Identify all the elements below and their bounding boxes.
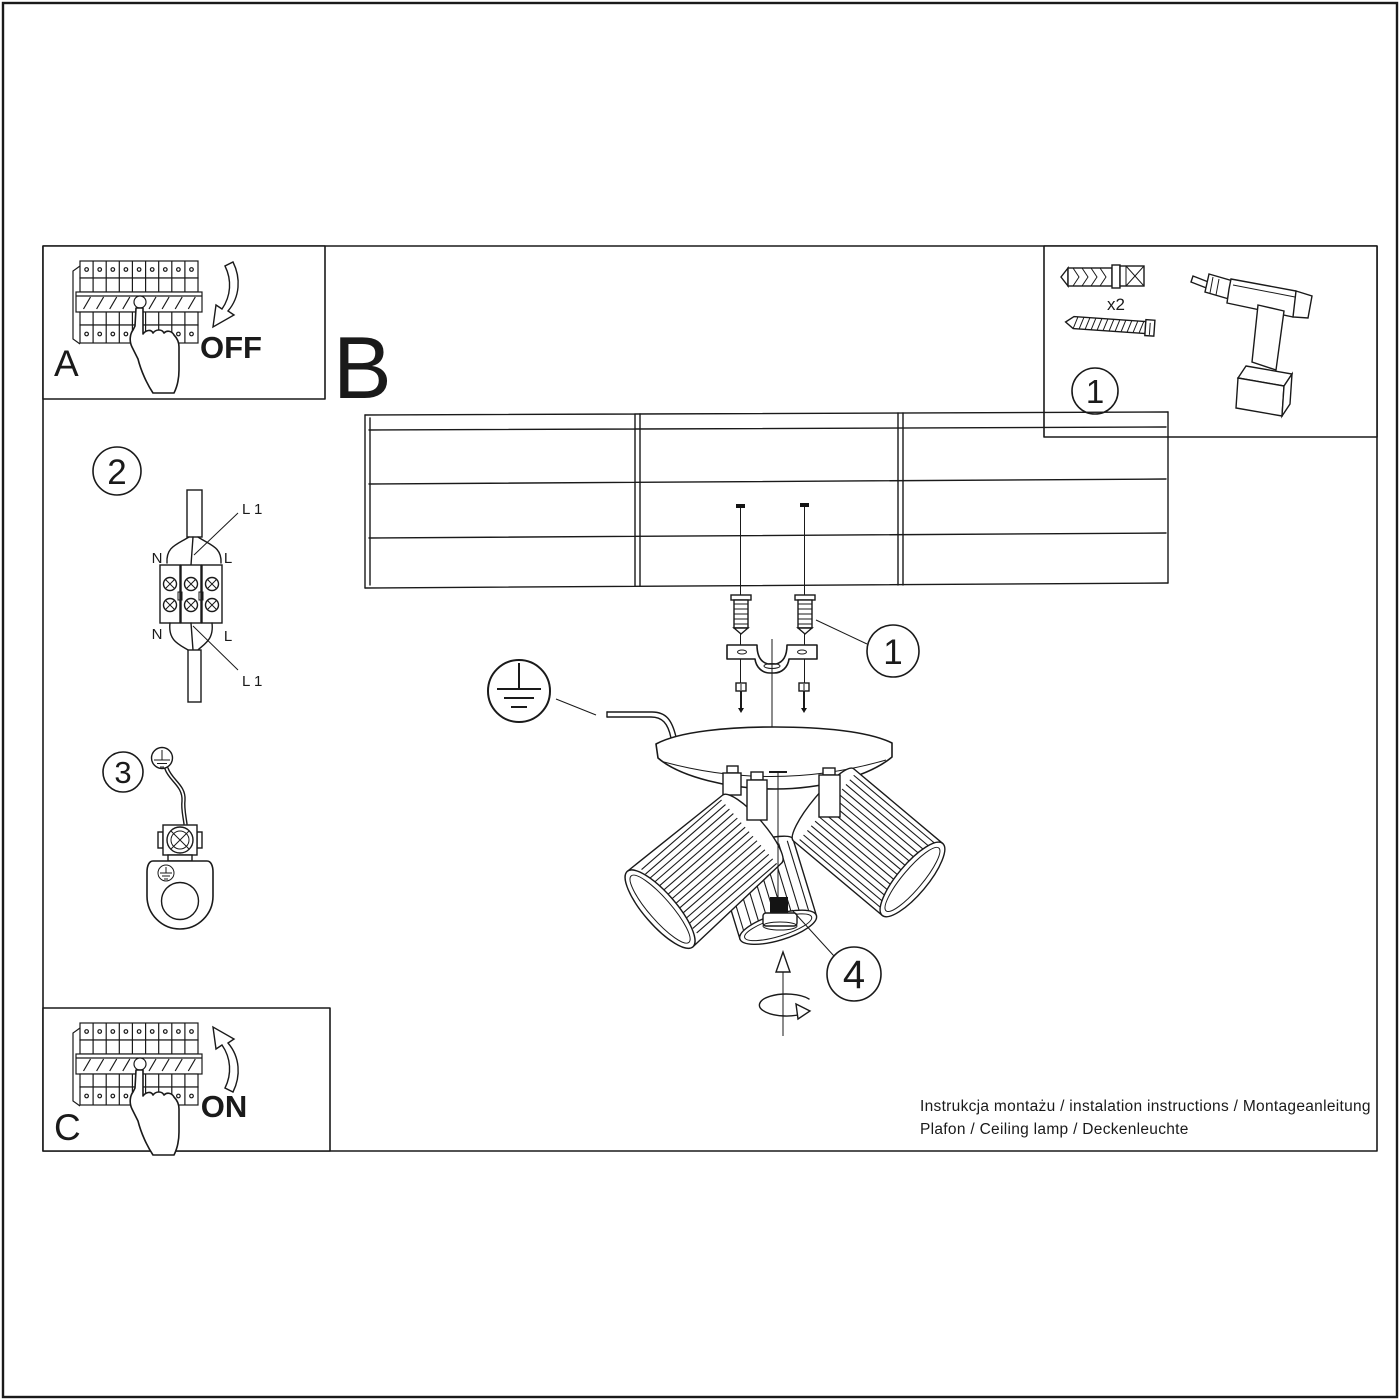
wall-plug-icon	[1061, 265, 1144, 288]
n-top-label: N	[152, 550, 163, 567]
on-label: ON	[201, 1089, 248, 1124]
drill-mark-icon	[800, 503, 809, 507]
instruction-sheet-page: OFF A ON C x2	[0, 0, 1400, 1400]
footer-line-2: Plafon / Ceiling lamp / Deckenleuchte	[920, 1121, 1189, 1138]
box-b-letter: B	[333, 318, 392, 417]
footer-line-1: Instrukcja montażu / instalation instruc…	[920, 1098, 1371, 1115]
lamp-stem-right	[819, 768, 840, 817]
dowel-quantity-label: x2	[1107, 295, 1125, 314]
step-1-tools-number: 1	[1086, 373, 1104, 410]
terminal-block	[160, 565, 222, 623]
step-1-bracket-number: 1	[883, 633, 902, 672]
wall-plug-right-icon	[795, 595, 815, 634]
l1-bottom-label: L 1	[242, 673, 262, 690]
step-4-number: 4	[843, 953, 865, 997]
step-3-number: 3	[114, 755, 131, 790]
page-frame	[3, 3, 1397, 1397]
wall-plug-left-icon	[731, 595, 751, 634]
l-top-label: L	[224, 550, 232, 567]
box-a-letter: A	[54, 343, 79, 384]
step-2-number: 2	[107, 453, 126, 492]
ground-lug-icon	[147, 855, 213, 929]
box-c-letter: C	[54, 1107, 81, 1148]
cable-top	[187, 490, 202, 537]
cable-bottom	[188, 650, 201, 702]
n-bottom-label: N	[152, 626, 163, 643]
instruction-diagram: OFF A ON C x2	[0, 0, 1400, 1400]
off-label: OFF	[200, 330, 262, 365]
l-bottom-label: L	[224, 628, 232, 645]
drill-mark-icon	[736, 504, 745, 508]
l1-top-label: L 1	[242, 501, 262, 518]
earth-terminal-icon	[158, 825, 202, 855]
